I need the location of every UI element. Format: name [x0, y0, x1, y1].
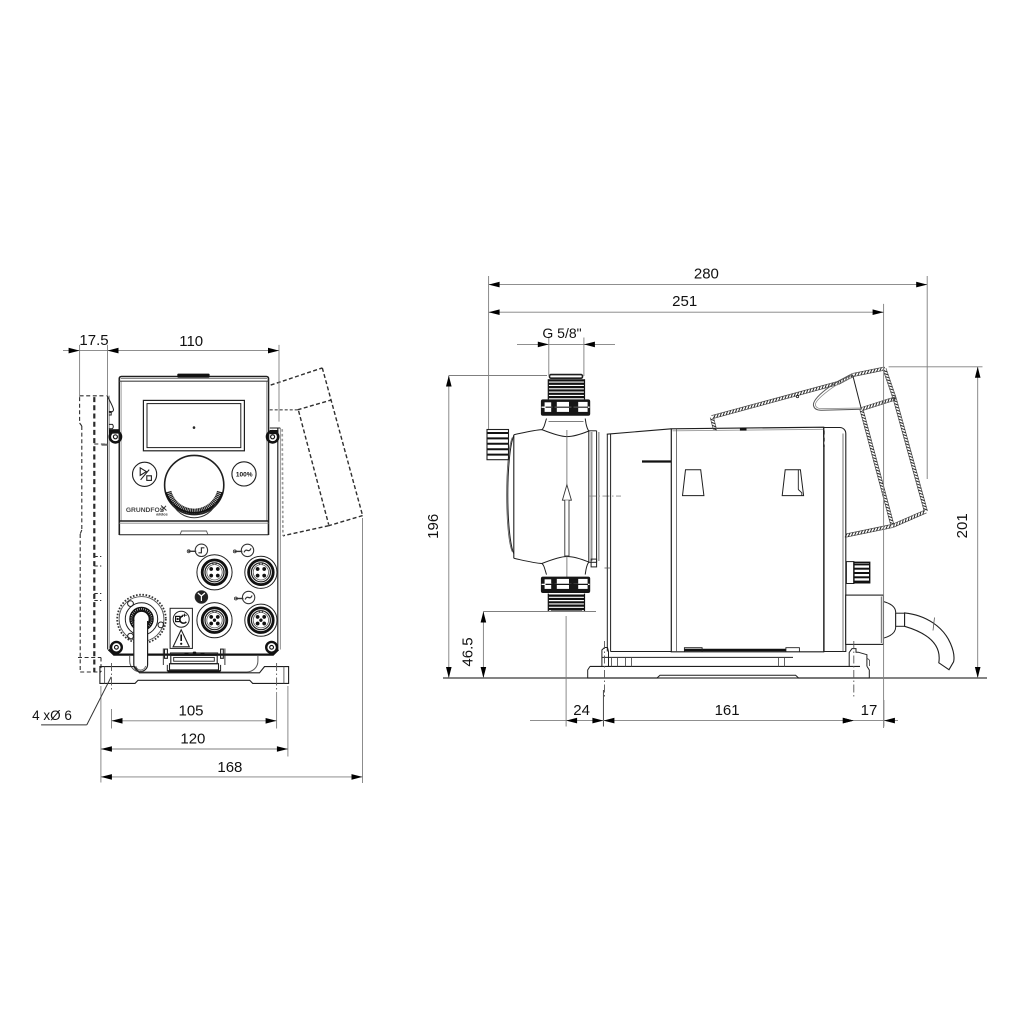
svg-text:161: 161 — [715, 702, 740, 719]
svg-text:168: 168 — [217, 759, 242, 776]
svg-text:46.5: 46.5 — [460, 637, 477, 666]
svg-text:17.5: 17.5 — [79, 332, 108, 349]
svg-text:17: 17 — [861, 702, 878, 719]
svg-text:alldos: alldos — [156, 511, 168, 516]
svg-text:120: 120 — [180, 731, 205, 748]
svg-text:4 xØ 6: 4 xØ 6 — [32, 708, 72, 723]
svg-text:196: 196 — [425, 514, 442, 539]
svg-text:24: 24 — [573, 702, 590, 719]
svg-text:100%: 100% — [236, 471, 253, 478]
svg-text:110: 110 — [179, 333, 203, 350]
svg-text:105: 105 — [178, 703, 203, 720]
svg-text:251: 251 — [672, 293, 697, 310]
svg-text:201: 201 — [954, 513, 971, 538]
svg-text:G 5/8": G 5/8" — [542, 325, 581, 341]
svg-text:280: 280 — [694, 266, 719, 283]
